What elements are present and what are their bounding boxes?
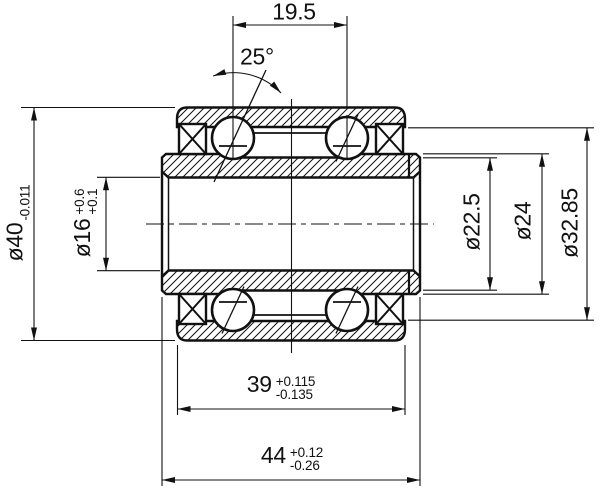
- label-outer-ring-bore-diameter: ø32.85: [557, 188, 584, 258]
- dim-contact-angle: [213, 73, 281, 93]
- label-contact-angle: 25°: [240, 44, 274, 71]
- label-inner-ring-groove-diameter: ø22.5: [459, 193, 486, 250]
- label-ball-row-spacing: 19.5: [272, 0, 316, 26]
- seal-bottom-left: [179, 294, 206, 324]
- label-outer-diameter: ø40-0.011: [2, 185, 33, 262]
- label-outer-ring-width: 39+0.115-0.135: [247, 371, 315, 401]
- seal-bottom-right: [376, 294, 403, 324]
- label-inner-ring-land-diameter: ø24: [510, 202, 537, 241]
- seal-top-left: [179, 124, 206, 154]
- label-bore-diameter: ø16+0.6+0.1: [69, 189, 99, 258]
- label-overall-width: 44+0.12-0.26: [261, 442, 323, 472]
- seal-top-right: [376, 124, 403, 154]
- bearing-technical-drawing: 19.5 25° ø40-0.011 ø16+0.6+0.1 ø22.5 ø24…: [0, 0, 600, 493]
